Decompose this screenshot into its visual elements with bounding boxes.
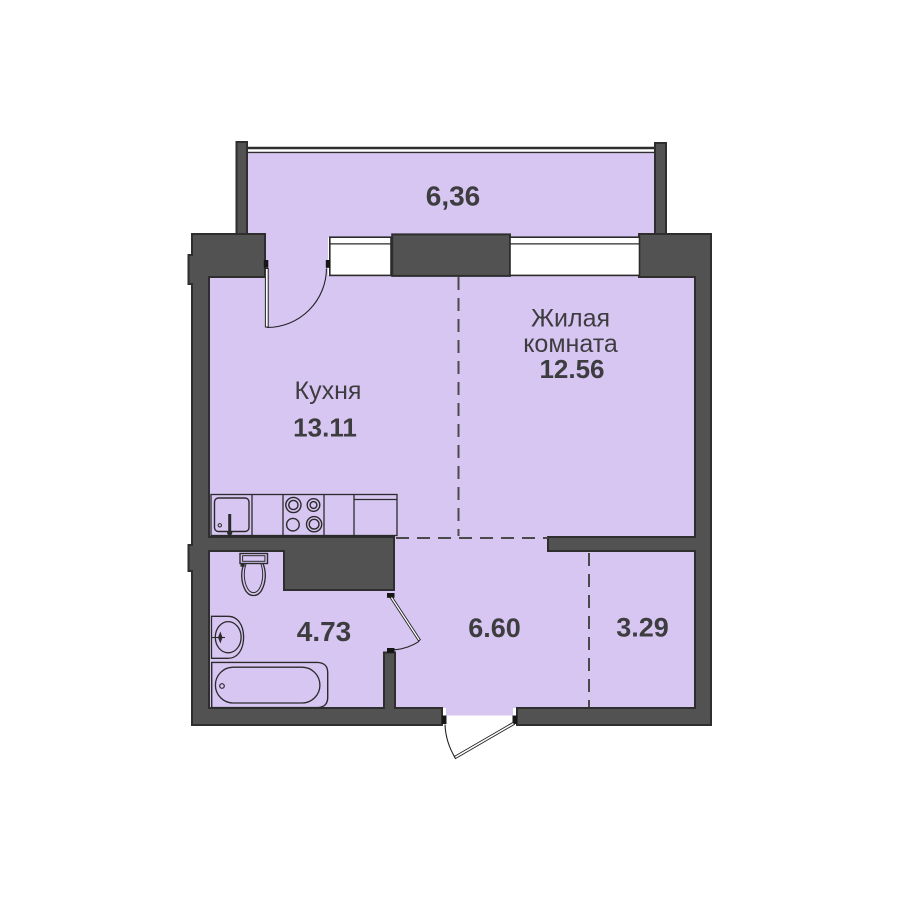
svg-text:12.56: 12.56	[539, 354, 604, 384]
svg-text:6,36: 6,36	[426, 181, 481, 212]
svg-text:4.73: 4.73	[297, 616, 352, 647]
svg-text:6.60: 6.60	[468, 613, 521, 643]
svg-text:Кухня: Кухня	[295, 377, 362, 405]
svg-text:Жилая: Жилая	[531, 305, 610, 333]
svg-text:3.29: 3.29	[616, 613, 669, 643]
svg-text:13.11: 13.11	[293, 413, 357, 443]
